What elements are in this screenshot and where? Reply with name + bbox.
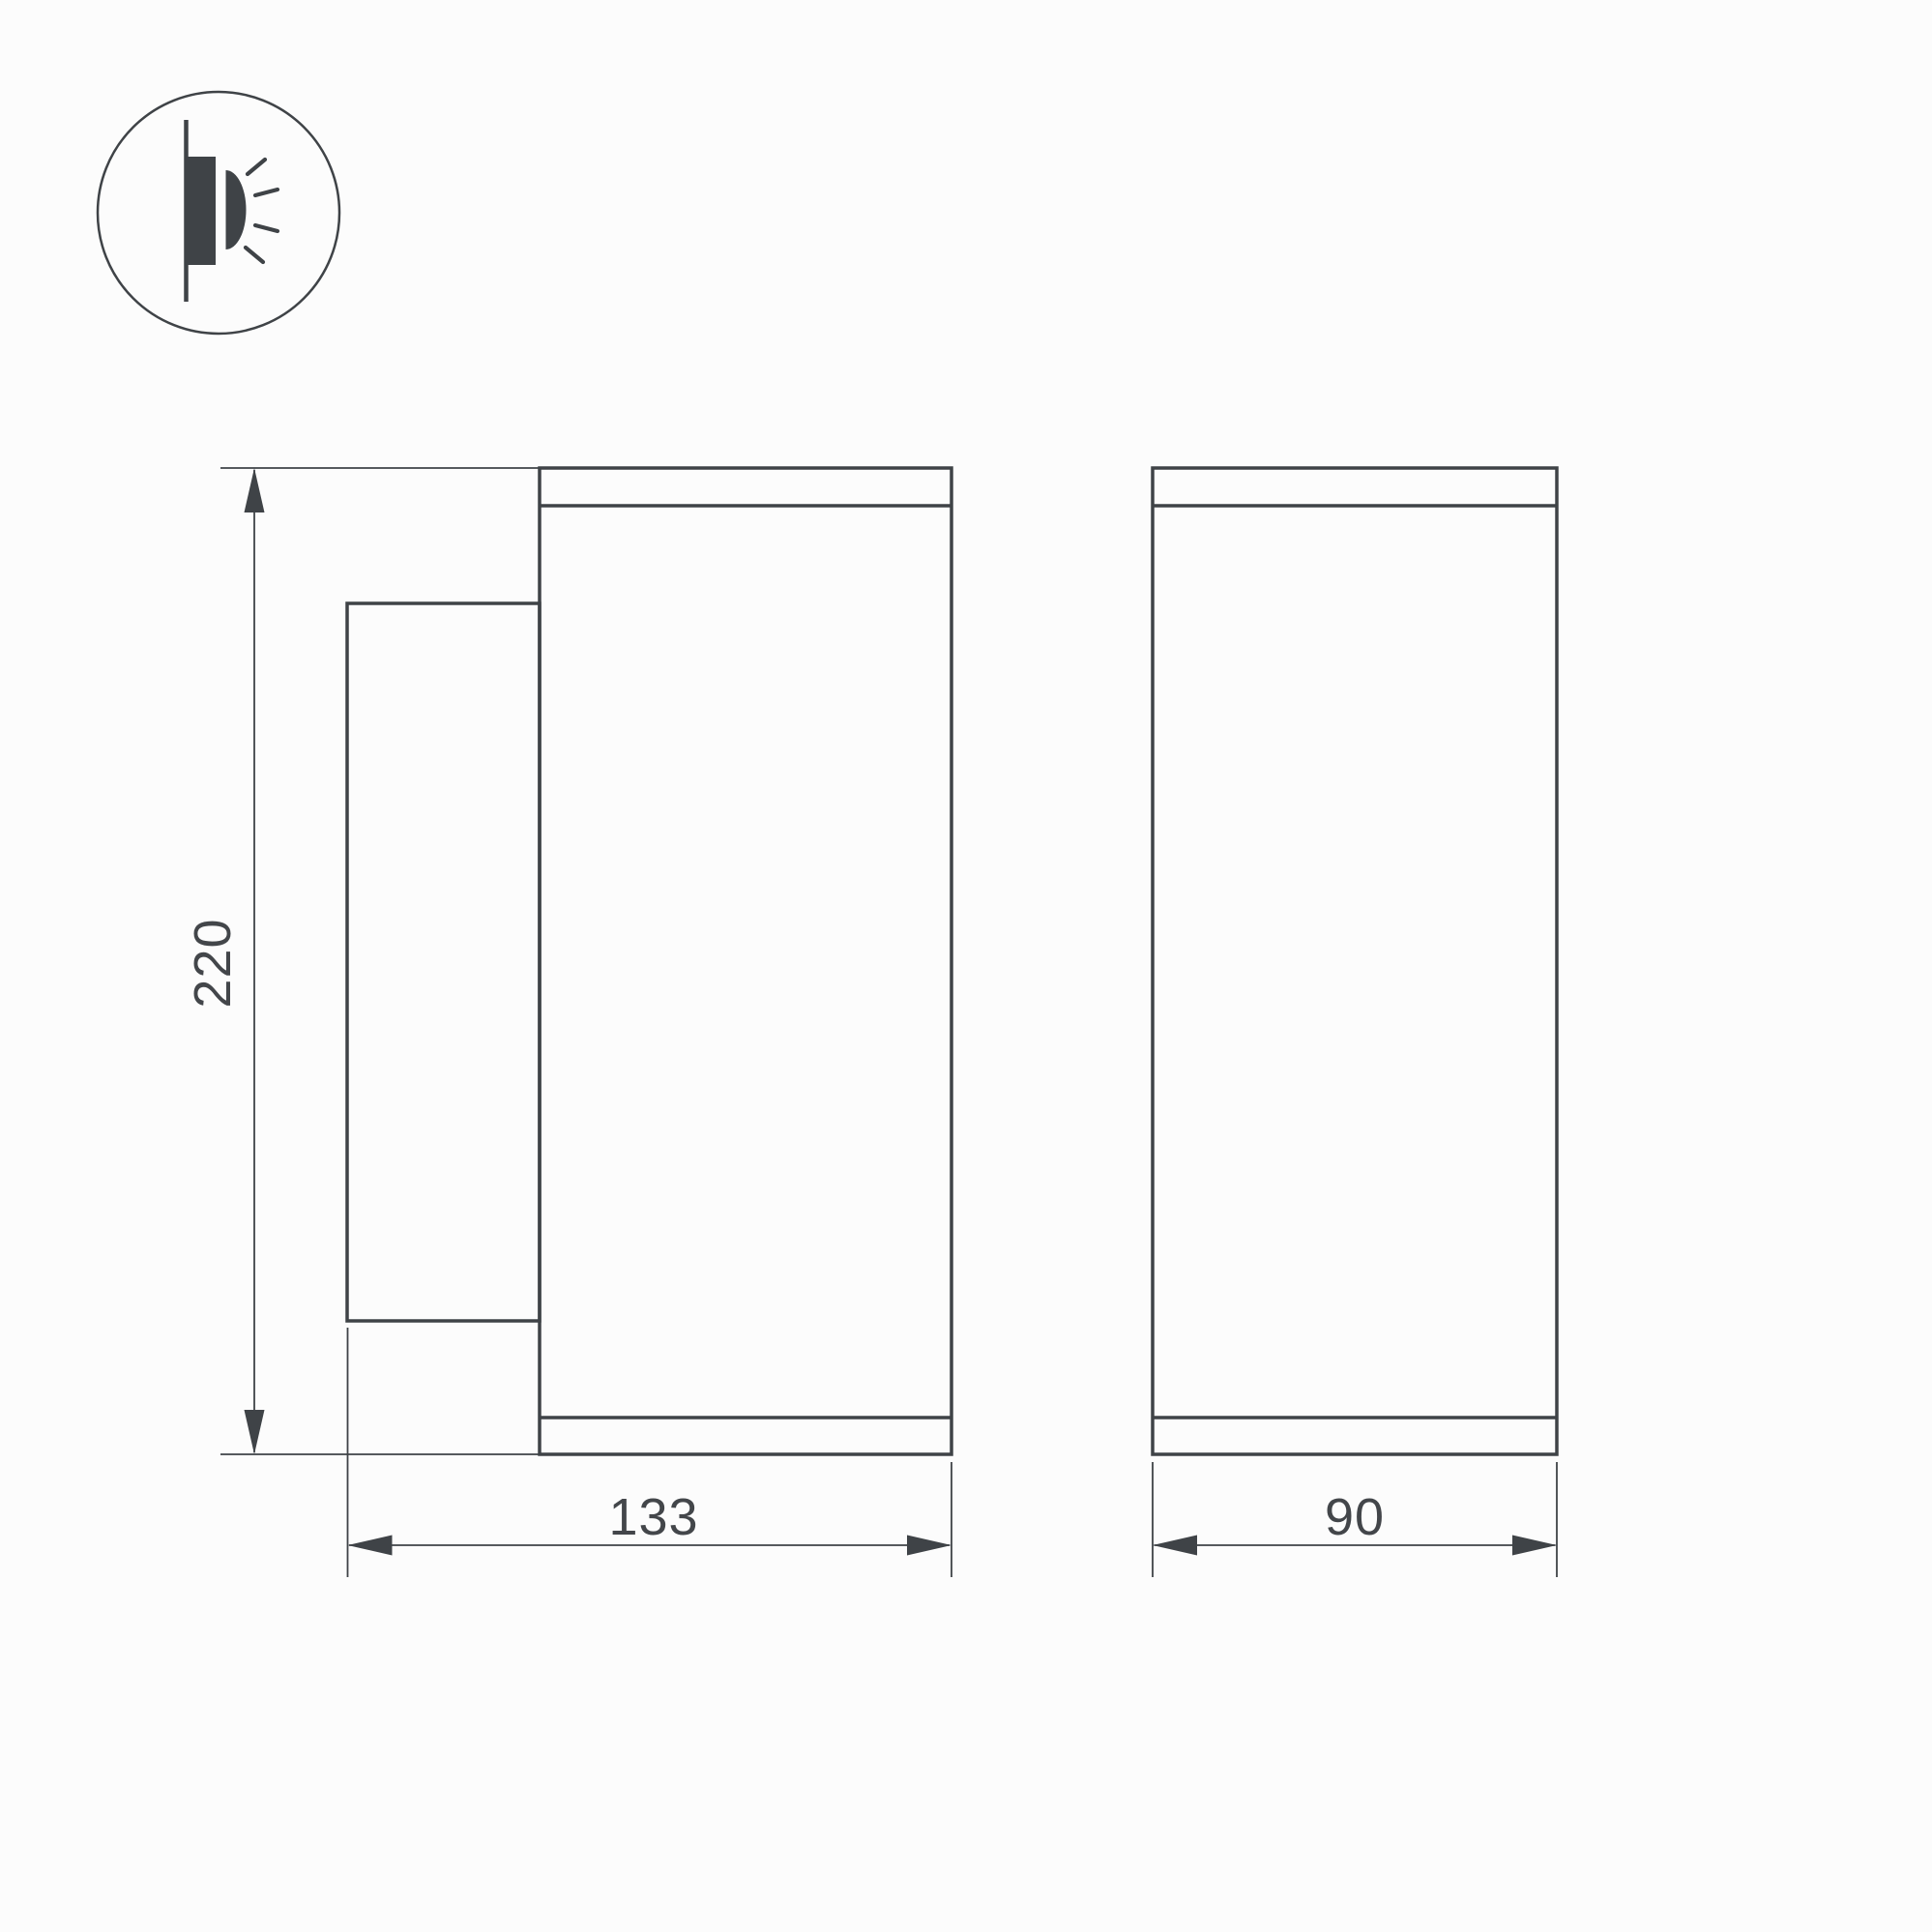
- width-arrow-right: [1512, 1536, 1557, 1556]
- icon-light-ray-4: [246, 248, 263, 262]
- side-view: [347, 468, 951, 1454]
- icon-light-ray-2: [255, 190, 278, 195]
- depth-dimension: 133: [348, 1328, 952, 1577]
- icon-light-ray-3: [255, 225, 278, 231]
- height-dimension: 220: [184, 468, 540, 1454]
- width-dimension-label: 90: [1325, 1488, 1385, 1546]
- depth-dimension-label: 133: [608, 1488, 698, 1546]
- height-dimension-label: 220: [184, 918, 242, 1008]
- height-arrow-down: [245, 1410, 265, 1454]
- depth-arrow-left: [348, 1536, 393, 1556]
- icon-lamp-body: [188, 157, 216, 265]
- wall-mount-light-icon: [98, 92, 339, 334]
- width-arrow-left: [1153, 1536, 1197, 1556]
- icon-light-dome: [226, 170, 247, 249]
- front-view-body-outline: [1153, 468, 1557, 1454]
- front-view: [1153, 468, 1557, 1454]
- technical-drawing-canvas: 220 133 90: [0, 0, 1932, 1932]
- icon-circle: [98, 92, 339, 334]
- height-arrow-up: [245, 468, 265, 512]
- side-view-body-outline: [540, 468, 951, 1454]
- icon-light-ray-1: [248, 160, 265, 174]
- side-view-wall-plate: [347, 603, 540, 1321]
- depth-arrow-right: [907, 1536, 951, 1556]
- width-dimension: 90: [1153, 1462, 1557, 1577]
